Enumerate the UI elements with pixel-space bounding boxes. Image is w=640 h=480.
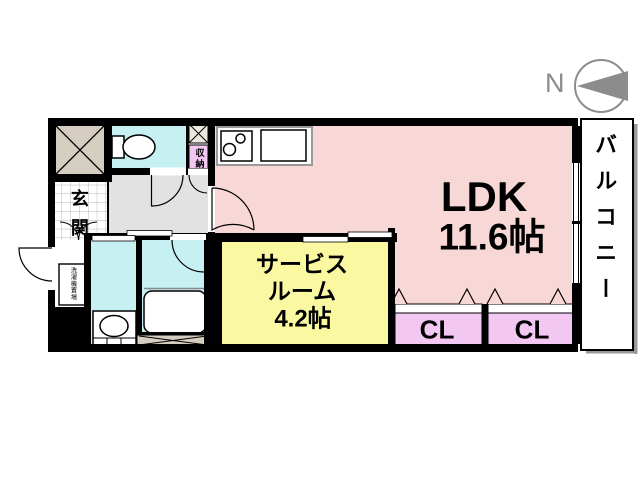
ldk-size-label: 11.6帖 xyxy=(439,219,546,258)
bathtub-icon xyxy=(144,289,206,334)
entrance-door-arc xyxy=(19,248,52,281)
closet-right-door xyxy=(488,304,575,313)
closet-left-label: CL xyxy=(420,316,455,343)
service-room-size-label: 4.2帖 xyxy=(274,306,331,331)
floorplan-page: N LDK 11.6帖 サービス ルーム 4.2帖 CL CL バルコニー 玄関… xyxy=(0,0,640,480)
pipe-space xyxy=(50,307,84,345)
entrance-label: 玄関 xyxy=(69,189,88,247)
laundry-label: 洗濯機置場 xyxy=(69,267,76,301)
washbasin-icon xyxy=(93,311,136,345)
closet-left-door xyxy=(395,304,482,313)
service-room-label-line1: サービス xyxy=(256,252,348,276)
balcony-window xyxy=(572,163,580,283)
north-label: N xyxy=(545,69,565,97)
toilet-icon xyxy=(112,135,155,159)
sink-icon xyxy=(261,130,306,161)
closet-right-label: CL xyxy=(515,316,550,343)
kitchen-counter xyxy=(217,127,312,165)
storage-label: 収納 xyxy=(194,148,203,170)
north-arrow-icon xyxy=(575,60,628,112)
ldk-label: LDK xyxy=(441,175,527,219)
balcony-label: バルコニー xyxy=(593,133,616,313)
service-room-label-line2: ルーム xyxy=(268,279,336,303)
